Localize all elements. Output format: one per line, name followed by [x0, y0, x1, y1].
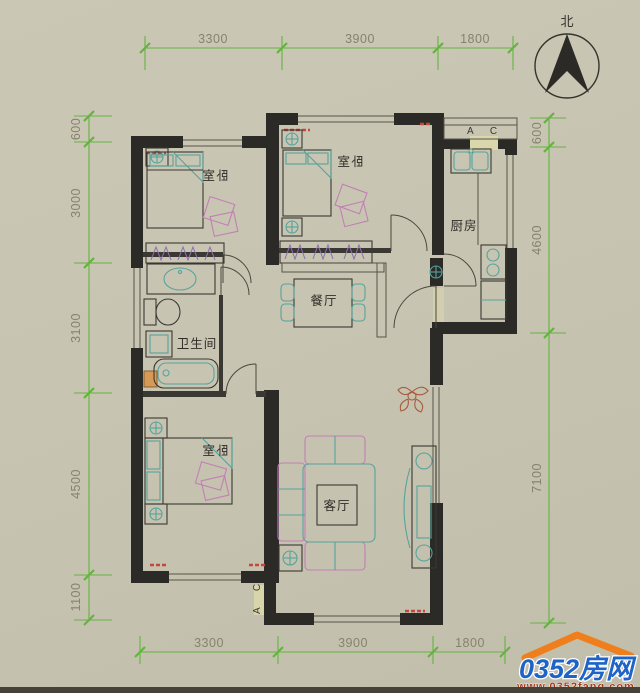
room-labels: 卧室 卧室 厨房 餐厅 卫生间 卧室 客厅 A C A C: [177, 126, 504, 614]
bedroom3-door: [226, 364, 256, 394]
room-label-bedroom-top-middle: 卧室: [336, 154, 363, 169]
hall-screen: [377, 263, 386, 337]
dim-top-3: 1800: [460, 32, 490, 46]
chair: [281, 304, 294, 321]
door-label-kitchen-balcony: A C: [467, 126, 504, 137]
toilet-tank: [144, 299, 156, 325]
sofa-left: [278, 463, 305, 541]
walls: [131, 113, 517, 625]
north-compass: 北: [535, 14, 599, 98]
window-red-marks: [146, 124, 432, 611]
pillow-sketch: [203, 197, 238, 237]
dim-left-5: 1100: [69, 583, 83, 612]
bed: [283, 150, 331, 216]
dimension-top: 3300 3900 1800: [140, 32, 518, 70]
watermark-brand: 0352房网: [519, 654, 637, 684]
furniture-kitchen: [451, 149, 506, 319]
bathroom-door: [221, 267, 249, 295]
dim-top-1: 3300: [198, 32, 228, 46]
room-label-bedroom-bottom-left: 卧室: [201, 443, 228, 458]
dimension-bottom: 3300 3900 1800: [135, 636, 510, 664]
room-label-bathroom: 卫生间: [177, 337, 218, 351]
furniture-bedroom-top-middle: [280, 130, 372, 263]
dim-right-2: 4600: [530, 225, 544, 255]
furniture-bedroom-bottom-left: [145, 418, 232, 524]
stove: [481, 245, 506, 279]
bedroom1-door: [223, 255, 251, 283]
room-label-dining: 餐厅: [310, 293, 337, 308]
dimension-left: 600 3000 3100 4500 1100: [69, 111, 112, 625]
door-label-living-balcony: A C: [252, 577, 263, 614]
watermark: 0352房网 www.0352fang.com: [516, 635, 637, 693]
bed: [147, 152, 203, 228]
furniture-living: [278, 436, 436, 571]
dim-left-3: 3100: [69, 313, 83, 343]
floorplan-svg: 卧室 卧室 厨房 餐厅 卫生间 卧室 客厅 A C A C 3300 3900 …: [0, 0, 640, 693]
dim-right-3: 7100: [530, 463, 544, 493]
pillow-sketch: [195, 462, 228, 501]
dimension-right: 600 4600 7100: [530, 113, 566, 628]
pillow-sketch: [335, 184, 368, 226]
north-arrow-icon: [545, 34, 589, 93]
chair: [281, 284, 294, 301]
dim-bottom-1: 3300: [194, 636, 224, 650]
compass-north-label: 北: [560, 14, 573, 29]
dim-bottom-3: 1800: [455, 636, 485, 650]
dim-right-1: 600: [530, 122, 544, 144]
room-label-kitchen: 厨房: [450, 218, 477, 233]
furniture-bathroom: [144, 264, 218, 388]
dim-left-4: 4500: [69, 469, 83, 499]
dim-top-2: 3900: [345, 32, 375, 46]
chair: [352, 284, 365, 301]
hall-cabinet: [282, 263, 384, 272]
bedroom2-door: [391, 215, 427, 251]
chair: [352, 304, 365, 321]
windows: [134, 116, 517, 622]
entry-door: [394, 286, 436, 328]
step-stool: [144, 371, 157, 387]
dim-left-2: 3000: [69, 188, 83, 218]
furniture-bedroom-top-left: [146, 148, 238, 263]
room-label-bedroom-top-left: 卧室: [201, 168, 228, 183]
room-label-living: 客厅: [323, 498, 350, 513]
toilet-bowl: [156, 299, 180, 325]
kitchen-door: [444, 254, 476, 286]
dim-left-1: 600: [69, 118, 83, 140]
floorplan-scan: 卧室 卧室 厨房 餐厅 卫生间 卧室 客厅 A C A C 3300 3900 …: [0, 0, 640, 693]
photo-edge: [0, 687, 640, 693]
door-highlights: [254, 136, 498, 615]
dim-bottom-2: 3900: [338, 636, 368, 650]
